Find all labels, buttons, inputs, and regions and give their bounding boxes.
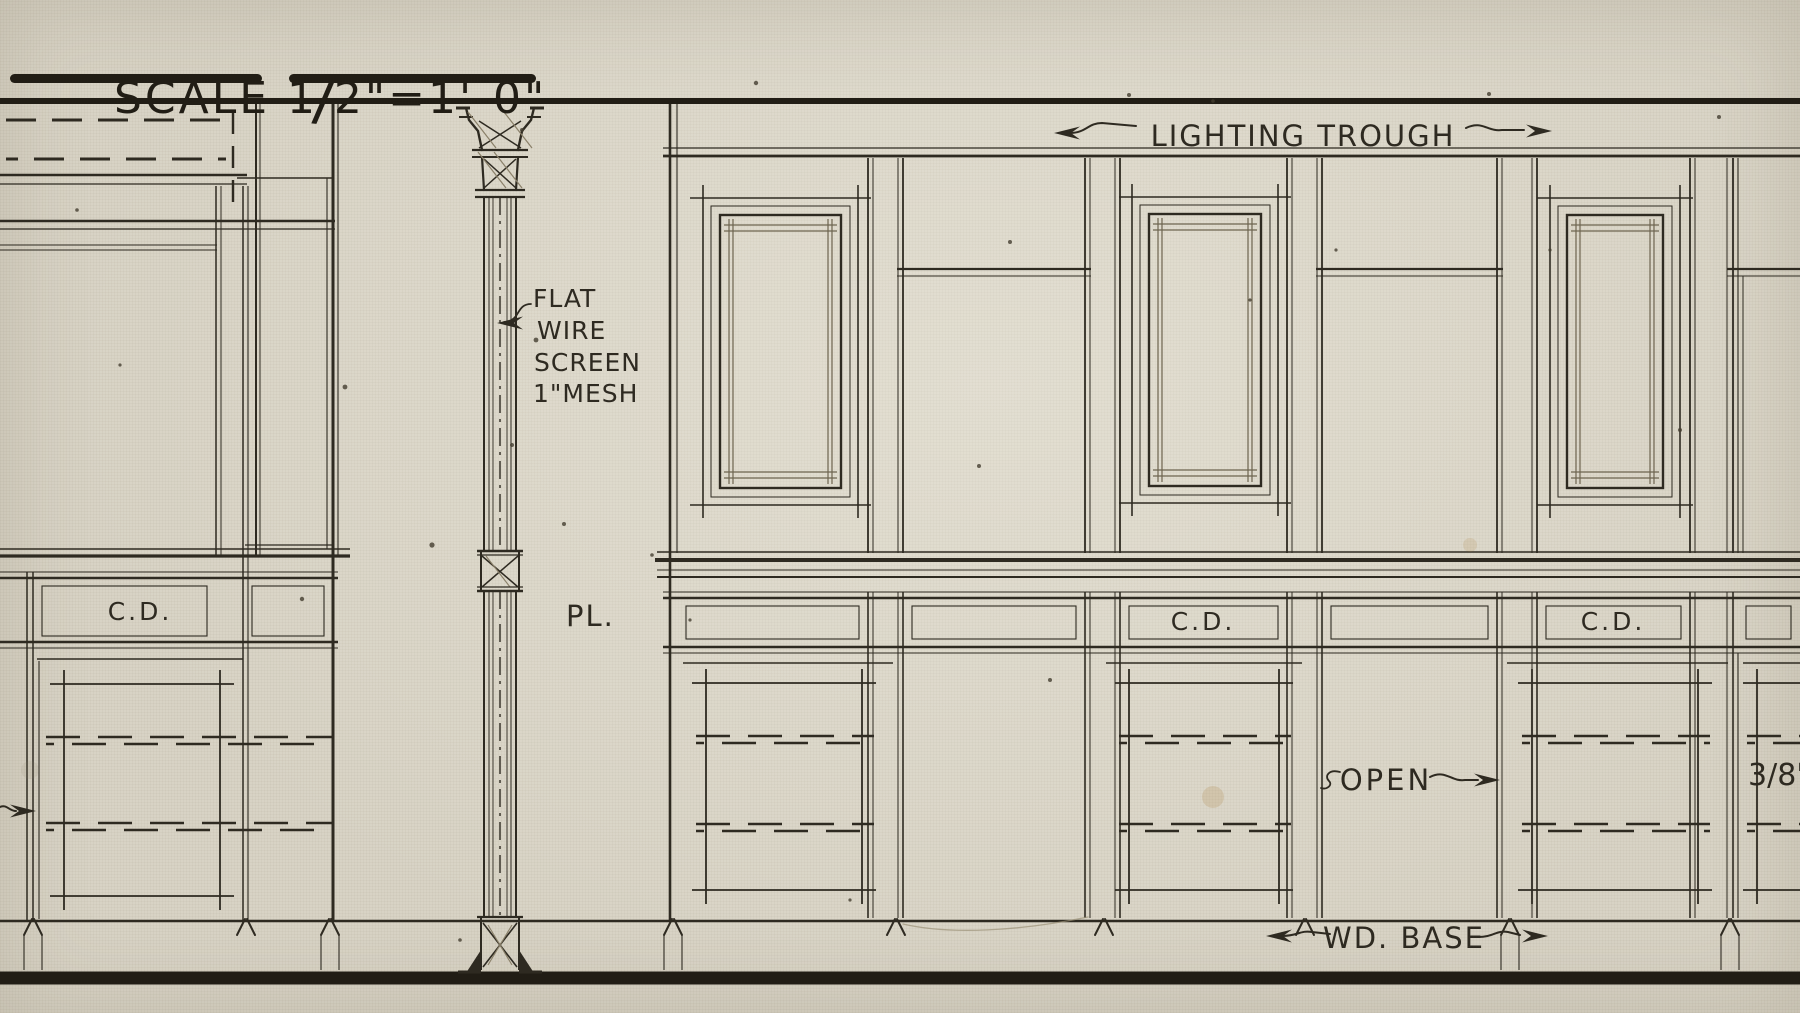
drawing-sheet: SCALE 1/2"=1'-0" LIGHTING TROUGH FLAT WI… (0, 0, 1800, 1013)
wood-base-label: WD. BASE (1323, 921, 1485, 955)
wood-base-band (0, 919, 1800, 978)
open-label: OPEN (1340, 763, 1432, 797)
cd-label-middle: C.D. (1171, 607, 1236, 636)
wire-screen-label-line3: SCREEN (534, 348, 641, 377)
right-wall (655, 104, 1800, 930)
wire-screen-label-line2: WIRE (537, 316, 606, 345)
wire-screen-label-line4: 1"MESH (533, 379, 638, 408)
title-underline-right (289, 74, 536, 83)
plate-label: PL. (566, 599, 615, 633)
cd-label-right: C.D. (1581, 607, 1646, 636)
screen-column (456, 108, 544, 973)
lighting-trough-label: LIGHTING TROUGH (1151, 119, 1456, 153)
title-underline-left (10, 74, 262, 83)
paper-specks (21, 81, 1721, 942)
cd-label-left: C.D. (108, 597, 173, 626)
dimension-label: 3/8" (1748, 758, 1800, 793)
scale-title: SCALE 1/2"=1'-0" (46, 4, 547, 179)
left-storefront (0, 104, 350, 921)
wire-screen-label-line1: FLAT (533, 284, 596, 313)
